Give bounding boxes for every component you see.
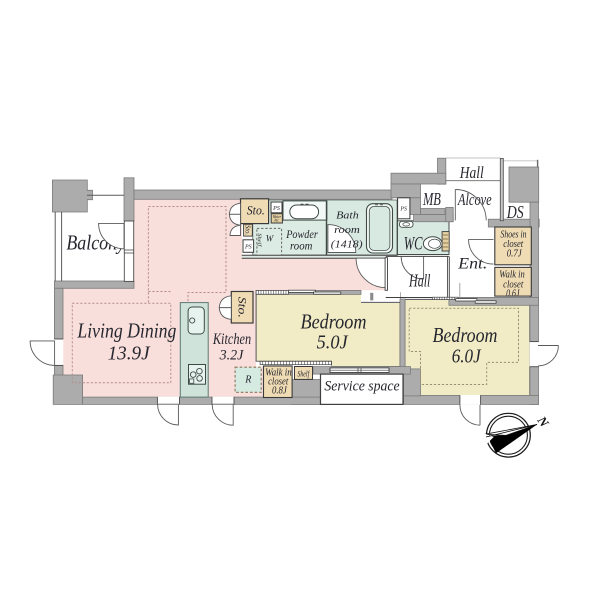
svg-text:0.7J: 0.7J <box>507 248 523 260</box>
svg-text:MB: MB <box>422 189 441 209</box>
svg-text:Hall: Hall <box>459 163 484 182</box>
svg-text:6.0J: 6.0J <box>452 345 482 367</box>
svg-text:Living Dining: Living Dining <box>77 318 177 342</box>
svg-text:Kitchen: Kitchen <box>212 331 251 348</box>
svg-text:Shelf: Shelf <box>297 368 310 378</box>
svg-text:PS: PS <box>399 207 407 213</box>
svg-text:htr.: htr. <box>274 219 279 223</box>
svg-text:DS: DS <box>506 202 524 222</box>
svg-text:Service space: Service space <box>324 378 400 394</box>
svg-text:PS: PS <box>272 206 280 212</box>
svg-text:5.0J: 5.0J <box>317 332 349 354</box>
svg-text:Sto.: Sto. <box>235 297 249 318</box>
svg-text:Sto.: Sto. <box>247 202 265 217</box>
svg-text:Shelf: Shelf <box>256 233 263 248</box>
svg-text:Powder: Powder <box>285 229 318 241</box>
svg-text:R: R <box>244 374 251 385</box>
svg-text:0.8J: 0.8J <box>272 385 288 397</box>
svg-text:Sto.: Sto. <box>244 225 252 235</box>
svg-text:Bath: Bath <box>336 210 359 221</box>
svg-text:room: room <box>334 225 360 236</box>
svg-text:Bedroom: Bedroom <box>433 323 498 347</box>
svg-text:Hall: Hall <box>408 271 430 291</box>
svg-text:(1418): (1418) <box>331 240 363 251</box>
svg-text:Bedroom: Bedroom <box>301 309 367 333</box>
svg-text:3.2J: 3.2J <box>219 348 244 364</box>
svg-text:Ent.: Ent. <box>457 256 487 273</box>
svg-text:0.6J: 0.6J <box>506 288 520 300</box>
svg-text:PS: PS <box>244 245 252 251</box>
svg-text:Alcove: Alcove <box>457 190 492 209</box>
svg-text:13.9J: 13.9J <box>108 342 151 364</box>
svg-text:WC: WC <box>404 233 423 254</box>
svg-text:room: room <box>290 240 312 252</box>
